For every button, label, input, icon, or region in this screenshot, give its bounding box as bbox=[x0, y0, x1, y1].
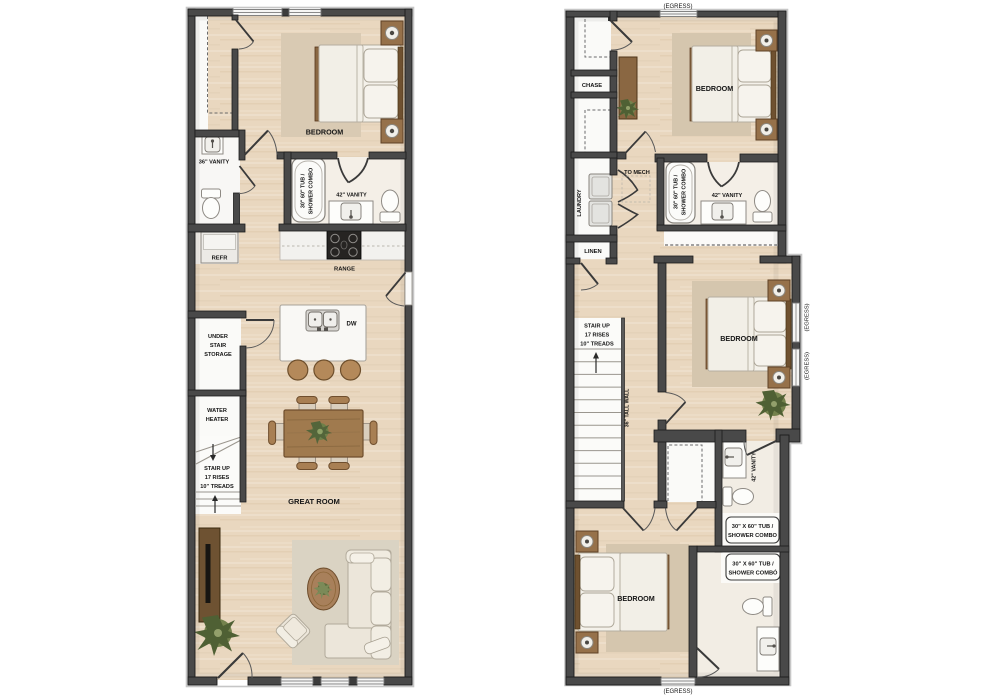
svg-text:SHOWER COMBO: SHOWER COMBO bbox=[309, 168, 315, 214]
svg-text:36" TALL WALL: 36" TALL WALL bbox=[625, 388, 631, 427]
svg-text:SHOWER COMBO: SHOWER COMBO bbox=[682, 169, 688, 215]
svg-text:SHOWER COMBO: SHOWER COMBO bbox=[728, 533, 778, 539]
svg-text:17 RISES: 17 RISES bbox=[205, 475, 230, 481]
svg-text:BEDROOM: BEDROOM bbox=[720, 334, 758, 343]
svg-text:SHOWER COMBÓ: SHOWER COMBÓ bbox=[729, 569, 779, 577]
svg-text:42" VANITY: 42" VANITY bbox=[336, 193, 367, 199]
svg-text:GREAT ROOM: GREAT ROOM bbox=[288, 497, 340, 506]
svg-text:BEDROOM: BEDROOM bbox=[696, 84, 734, 93]
svg-text:10" TREADS: 10" TREADS bbox=[200, 484, 234, 490]
svg-text:30" 60" TUB /: 30" 60" TUB / bbox=[674, 174, 680, 209]
svg-text:BEDROOM: BEDROOM bbox=[306, 128, 344, 137]
svg-text:CHASE: CHASE bbox=[582, 83, 602, 89]
svg-text:LINEN: LINEN bbox=[584, 249, 601, 255]
svg-text:(EGRESS): (EGRESS) bbox=[805, 303, 811, 331]
svg-text:(EGRESS): (EGRESS) bbox=[805, 352, 811, 380]
svg-text:17 RISES: 17 RISES bbox=[585, 333, 610, 339]
svg-text:HEATER: HEATER bbox=[206, 417, 229, 423]
svg-text:STAIR UP: STAIR UP bbox=[204, 466, 230, 472]
svg-text:RANGE: RANGE bbox=[334, 267, 355, 273]
svg-text:(EGRESS): (EGRESS) bbox=[663, 4, 692, 10]
svg-text:42" VANITY: 42" VANITY bbox=[752, 452, 758, 482]
svg-text:STORAGE: STORAGE bbox=[204, 352, 232, 358]
svg-text:42" VANITY: 42" VANITY bbox=[712, 193, 743, 199]
svg-text:UNDER: UNDER bbox=[208, 334, 228, 340]
svg-text:WATER: WATER bbox=[207, 408, 227, 414]
svg-text:36" VANITY: 36" VANITY bbox=[199, 160, 230, 166]
svg-text:DW: DW bbox=[347, 322, 357, 328]
svg-text:BEDROOM: BEDROOM bbox=[617, 594, 655, 603]
svg-text:STAIR: STAIR bbox=[210, 343, 226, 349]
svg-text:TO MECH: TO MECH bbox=[624, 170, 650, 176]
svg-text:30" 60" TUB /: 30" 60" TUB / bbox=[301, 173, 307, 208]
svg-text:10" TREADS: 10" TREADS bbox=[580, 342, 614, 348]
svg-text:STAIR UP: STAIR UP bbox=[584, 324, 610, 330]
svg-text:30" X 60" TUB /: 30" X 60" TUB / bbox=[732, 562, 774, 568]
svg-text:REFR: REFR bbox=[212, 256, 229, 262]
svg-text:30" X 60" TUB /: 30" X 60" TUB / bbox=[732, 524, 774, 530]
svg-text:(EGRESS): (EGRESS) bbox=[663, 689, 692, 695]
svg-text:LAUNDRY: LAUNDRY bbox=[577, 189, 583, 216]
